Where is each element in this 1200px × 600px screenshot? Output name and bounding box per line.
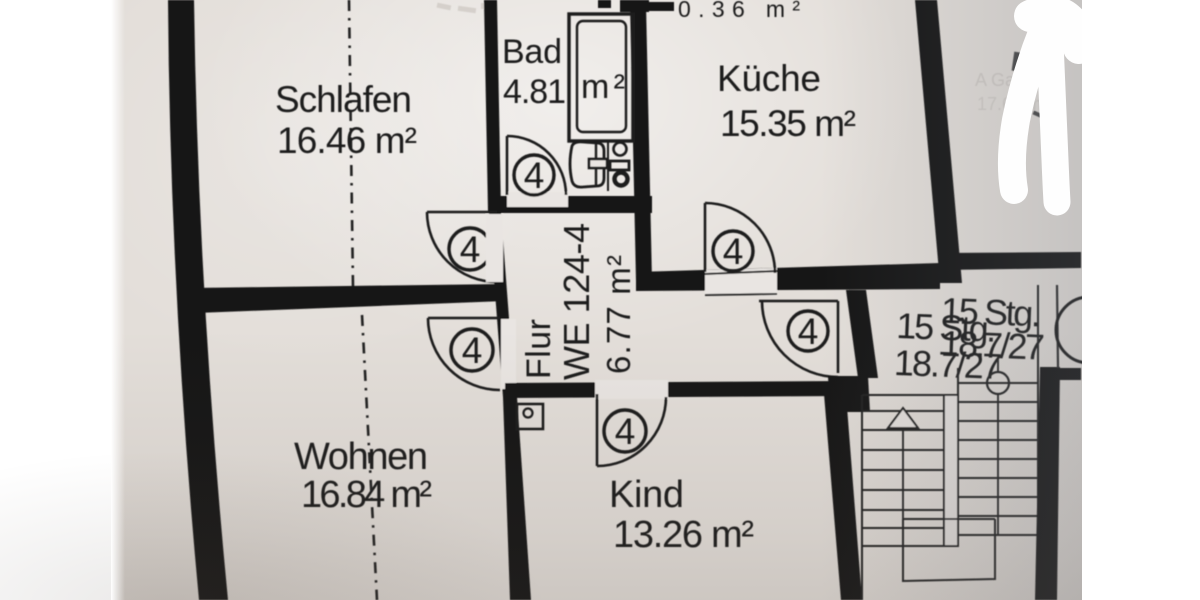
svg-text:4.81: 4.81	[503, 73, 566, 111]
svg-text:16.46 m²: 16.46 m²	[277, 120, 417, 161]
svg-text:4: 4	[524, 155, 545, 196]
svg-text:m²: m²	[581, 68, 625, 106]
svg-text:Bad: Bad	[502, 33, 562, 71]
svg-text:Schlafen: Schlafen	[275, 79, 412, 120]
svg-text:Küche: Küche	[717, 58, 821, 99]
svg-text:4: 4	[723, 231, 744, 272]
svg-text:4: 4	[460, 229, 481, 270]
